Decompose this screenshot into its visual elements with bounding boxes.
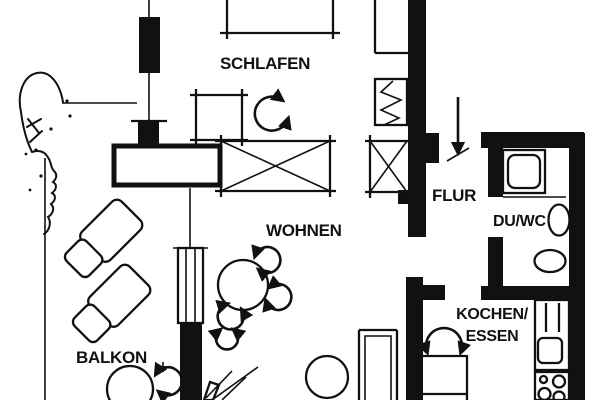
wall-center-stub bbox=[418, 152, 438, 163]
cabinet bbox=[359, 330, 397, 400]
wardrobe-small-crossed-icon bbox=[365, 135, 408, 198]
room-label-kochen-essen: KOCHEN/ ESSEN bbox=[450, 304, 534, 347]
shelf-top-right bbox=[375, 0, 409, 53]
wall-duwc-bottom bbox=[481, 286, 584, 300]
shower-icon bbox=[503, 150, 566, 197]
wall-pier-small bbox=[138, 121, 159, 144]
wall-duwc-left-upper bbox=[488, 148, 503, 197]
wall-pier-top bbox=[139, 17, 160, 73]
wall-right-outer bbox=[569, 133, 585, 400]
dresser bbox=[190, 89, 248, 146]
room-label-wohnen: WOHNEN bbox=[266, 222, 342, 239]
plant-icon bbox=[204, 367, 258, 400]
wall-kitchen-upper bbox=[406, 277, 423, 310]
bedroom-door-swing-icon bbox=[255, 97, 288, 131]
wall-kitchen-stub bbox=[423, 285, 445, 300]
entrance-arrow-icon bbox=[447, 97, 469, 161]
window-icon bbox=[173, 248, 208, 323]
floorplan-page: SCHLAFEN WOHNEN BALKON FLUR DU/WC KOCHEN… bbox=[0, 0, 600, 400]
room-label-du-wc: DU/WC bbox=[493, 214, 546, 230]
room-label-flur: FLUR bbox=[432, 187, 476, 204]
room-label-schlafen: SCHLAFEN bbox=[220, 55, 310, 72]
bed bbox=[220, 0, 340, 39]
wc-icon bbox=[535, 250, 566, 272]
radiator-icon bbox=[375, 79, 407, 125]
sideboard bbox=[114, 146, 220, 185]
dining-table bbox=[421, 355, 467, 400]
wall-center-vertical bbox=[408, 0, 426, 237]
room-label-kochen-line1: KOCHEN/ bbox=[450, 304, 534, 326]
round-table bbox=[218, 260, 268, 310]
stove-icon bbox=[535, 372, 569, 400]
round-table-2 bbox=[306, 356, 348, 398]
room-label-kochen-line2: ESSEN bbox=[450, 326, 534, 348]
wardrobe-crossed-icon bbox=[215, 135, 336, 197]
washbasin-icon bbox=[549, 205, 570, 236]
balcony-chair-arrow-icon bbox=[156, 362, 182, 395]
wall-duwc-top bbox=[481, 132, 584, 148]
wall-window-bottom bbox=[180, 323, 202, 400]
kitchen-counter bbox=[535, 300, 569, 370]
room-label-balkon: BALKON bbox=[76, 349, 147, 366]
wall-duwc-left-lower bbox=[488, 237, 503, 290]
balcony-table bbox=[107, 366, 153, 400]
